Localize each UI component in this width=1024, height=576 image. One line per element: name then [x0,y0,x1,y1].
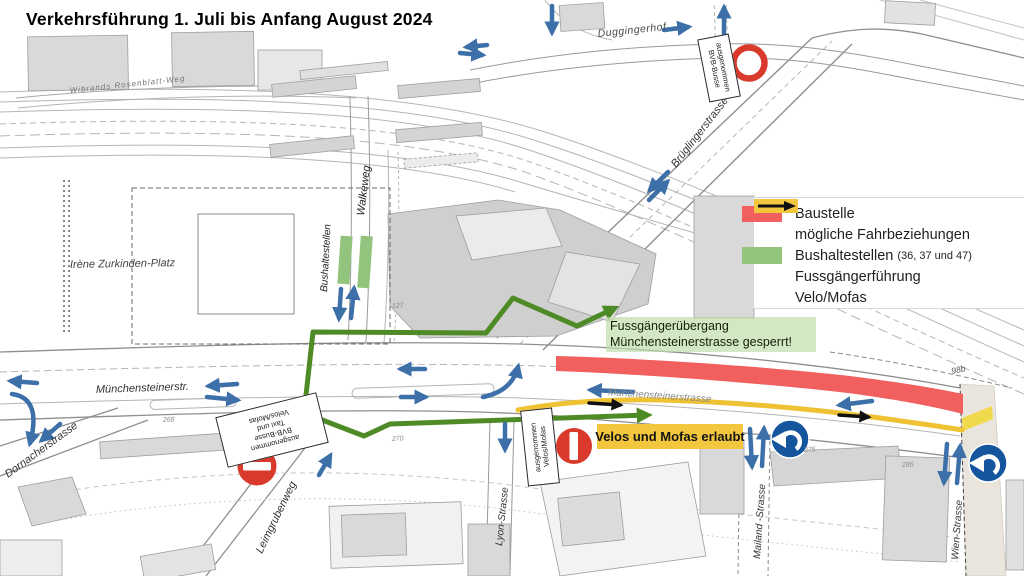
label-leimgrubenweg: Leimgrubenweg [254,479,299,555]
parcel-275: 275 [803,446,816,454]
legend-label: Baustelle [795,206,855,222]
label-brueglingerstrasse: Brüglingerstrasse [669,95,731,170]
label-mailand-strasse: Mailand -Strasse [752,483,768,559]
label-duggingerhof: Duggingerhof [597,21,668,40]
no-entry-sign-muenchensteiner [556,428,592,464]
legend-item-fussgaengerfuehrung: Fussgängerführung [754,266,1024,287]
legend-item-fahrbeziehungen: mögliche Fahrbeziehungen [754,224,1024,245]
label-zurkinden-platz: Irène Zurkinden-Platz [70,257,176,271]
label-muenchensteinerstrasse: Münchensteinerstrasse [608,387,712,405]
legend-label: Bushaltestellen [795,248,893,264]
callout-line1: Fussgängerübergang [610,319,812,335]
velos-allowed-text: Velos und Mofas erlaubt [595,429,745,444]
turn-left-sign-wien [969,444,1007,482]
parcel-268: 268 [162,416,175,424]
label-walkeweg: Walkeweg [355,164,373,217]
parcel-127: 127 [392,302,405,310]
callout-line2: Münchensteinerstrasse gesperrt! [610,335,812,351]
parcel-270: 270 [391,435,404,443]
legend-label: mögliche Fahrbeziehungen [795,227,970,243]
pedestrian-closed-callout: Fussgängerübergang Münchensteinerstrasse… [606,317,816,352]
legend-label: Fussgängerführung [795,269,921,285]
bushaltestelle-swatch-icon [739,247,785,264]
no-vehicles-sign [734,48,765,79]
label-bushaltestellen: Bushaltestellen [319,223,334,292]
label-wien-strasse: Wien-Strasse [950,499,965,560]
legend-item-velo-mofas: Velo/Mofas [754,287,1024,308]
legend-label: Velo/Mofas [795,290,867,306]
parcel-98b: 98b [950,363,966,376]
velos-allowed-band: Velos und Mofas erlaubt [597,424,743,449]
legend-panel: Baustelle mögliche Fahrbeziehungen Busha… [753,197,1024,309]
legend-item-bushaltestellen: Bushaltestellen (36, 37 und 47) [754,245,1024,266]
bus-stop-bars [337,236,372,289]
traffic-map-page: Wibrands Rosenblatt-Weg Duggingerhof Brü… [0,0,1024,576]
label-muenchensteinerstr: Münchensteinerstr. [96,381,190,396]
legend-label-lines: (36, 37 und 47) [897,250,972,262]
parcel-286: 286 [901,461,914,469]
page-title: Verkehrsführung 1. Juli bis Anfang Augus… [26,9,433,30]
